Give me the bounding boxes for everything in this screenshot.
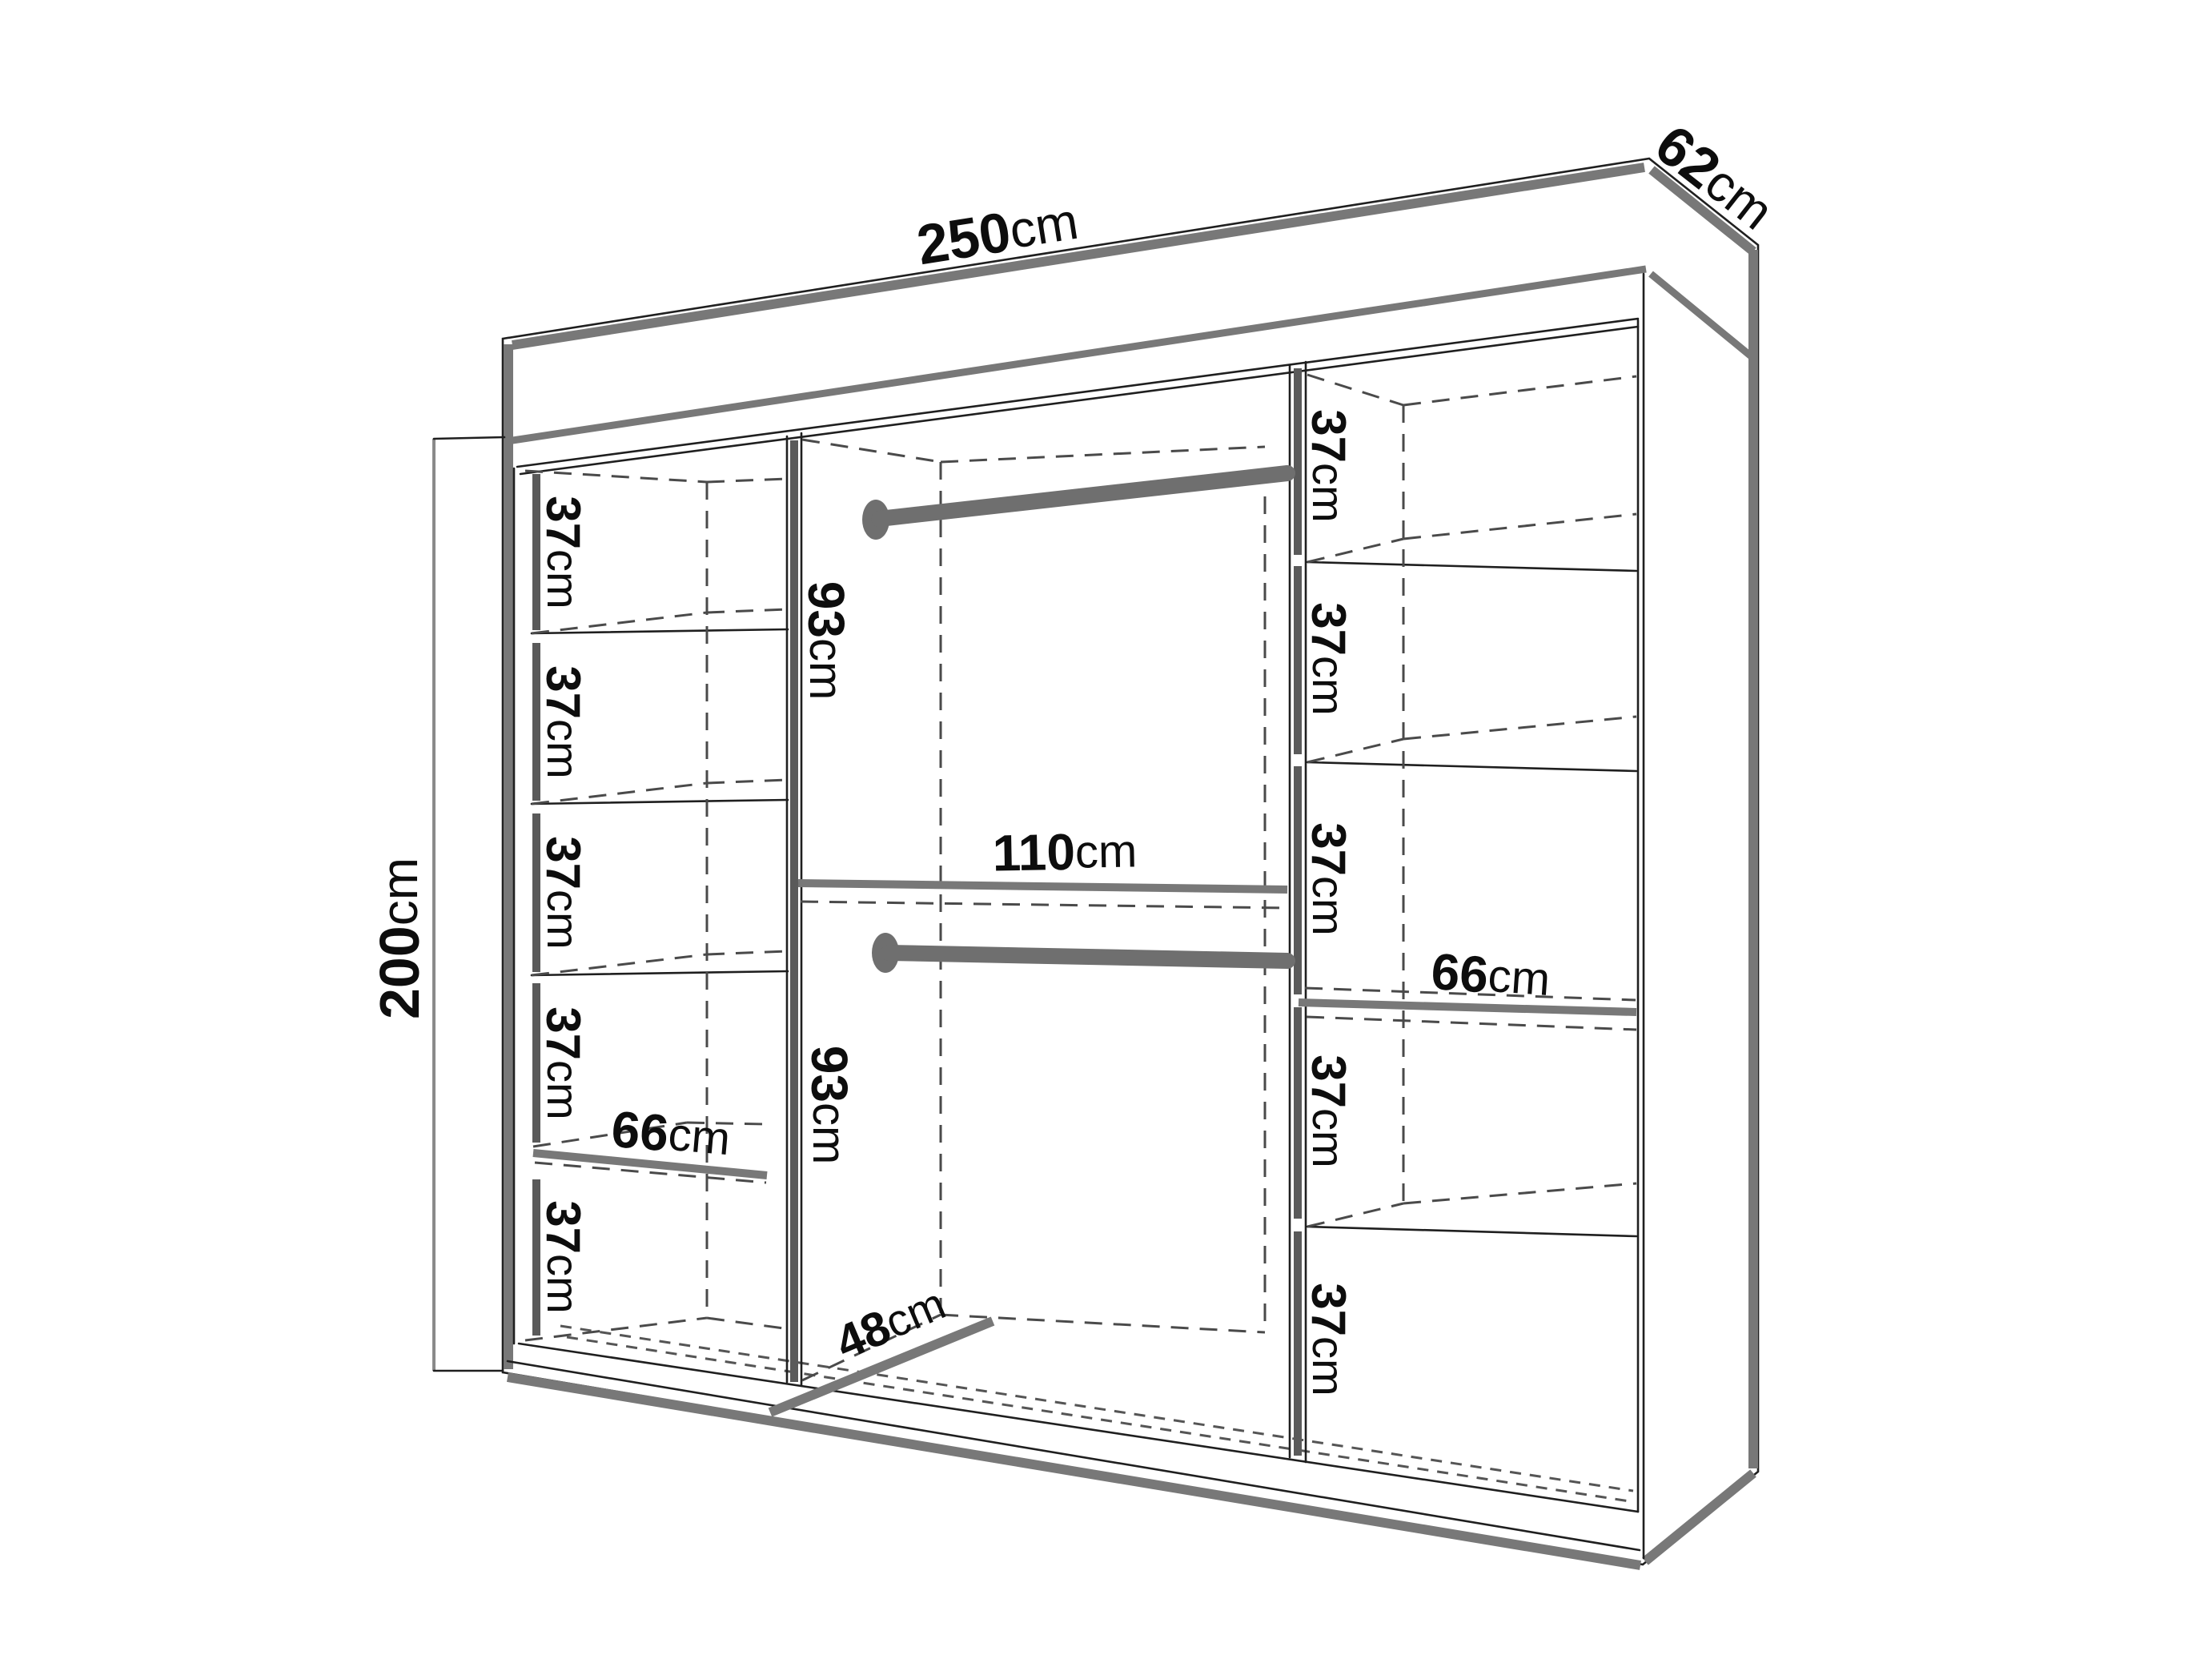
bottom-front-edge [508, 1377, 1640, 1565]
left-shelf3-back-hidden [707, 951, 787, 954]
left-shelf-height-label-4: 37cm [537, 1006, 591, 1119]
right-shelf-height-label-3: 37cm [1303, 822, 1356, 935]
wardrobe-diagram: 250cm 62cm 200cm 37cm 37cm 37cm 37cm 37c… [0, 0, 2212, 1659]
middle-divider-hidden [801, 902, 1286, 908]
right-shelf-front-2 [1307, 762, 1636, 771]
right-shelf1-back-hidden [1403, 514, 1636, 539]
right-wide-shelf-front [1299, 1002, 1636, 1012]
middle-ceiling-side-hidden [802, 440, 941, 462]
left-ceiling-back-hidden [707, 479, 787, 482]
right-shelf2-back-hidden [1403, 717, 1636, 739]
right-shelf1-side-hidden [1307, 539, 1403, 562]
dimension-labels: 250cm 62cm 200cm 37cm 37cm 37cm 37cm 37c… [368, 113, 1785, 1396]
right-wide-shelf-bottom-hidden [1307, 1017, 1636, 1030]
right-shelf-width-label: 66cm [1429, 942, 1552, 1008]
interior-surfaces [514, 274, 1644, 1558]
left-shelf-height-label-2: 37cm [537, 665, 591, 778]
right-shelf4-back-hidden [1403, 1183, 1636, 1203]
left-shelf2-back-hidden [707, 780, 787, 783]
middle-width-label: 110cm [992, 821, 1138, 882]
right-shelf-height-label-1: 37cm [1303, 409, 1356, 522]
upper-hanging-height-label: 93cm [797, 581, 855, 701]
left-partition [787, 433, 801, 1385]
top-band-bottom-edge [508, 269, 1646, 441]
left-floor-back-hidden [707, 1318, 789, 1329]
top-band-bottom-receding-edge [1651, 274, 1754, 359]
left-ceiling-side-hidden [525, 471, 707, 482]
left-shelf-height-label-3: 37cm [537, 836, 591, 949]
left-shelf1-back-hidden [707, 609, 787, 613]
left-floor-side-hidden [525, 1318, 707, 1340]
right-shelf-front-4 [1307, 1227, 1636, 1236]
interior-depth-label: 48cm [828, 1276, 953, 1370]
right-shelf-height-label-4: 37cm [1303, 1054, 1356, 1167]
lower-hanging-height-label: 93cm [801, 1046, 858, 1165]
left-shelf-height-label-1: 37cm [537, 496, 591, 609]
right-shelf-front-1 [1307, 562, 1636, 571]
middle-divider-shelf [798, 883, 1287, 890]
bottom-right-receding-edge [1645, 1473, 1753, 1561]
right-ceiling-side-hidden [1307, 375, 1403, 405]
left-shelf-width-label: 66cm [609, 1100, 733, 1168]
middle-ceiling-back-hidden [941, 447, 1265, 462]
ceiling-front-line [517, 319, 1638, 467]
floor-front-line [519, 1344, 1638, 1512]
height-extension-top [434, 437, 504, 439]
height-dimension [434, 437, 504, 1371]
lower-hanging-rod [889, 953, 1287, 961]
ceiling-inner-line [520, 327, 1638, 474]
right-shelf4-side-hidden [1307, 1203, 1403, 1227]
left-shelf-height-label-5: 37cm [537, 1200, 591, 1313]
plinth-top-line [508, 1361, 1640, 1550]
dim-height-label: 200cm [368, 858, 431, 1019]
wardrobe-diagram-canvas: 250cm 62cm 200cm 37cm 37cm 37cm 37cm 37c… [0, 0, 2212, 1659]
top-front-edge [512, 167, 1644, 345]
right-ceiling-back-hidden [1403, 376, 1636, 405]
right-shelf-height-label-5: 37cm [1303, 1283, 1356, 1396]
right-shelf-height-label-2: 37cm [1303, 602, 1356, 715]
right-shelf2-side-hidden [1307, 739, 1403, 762]
